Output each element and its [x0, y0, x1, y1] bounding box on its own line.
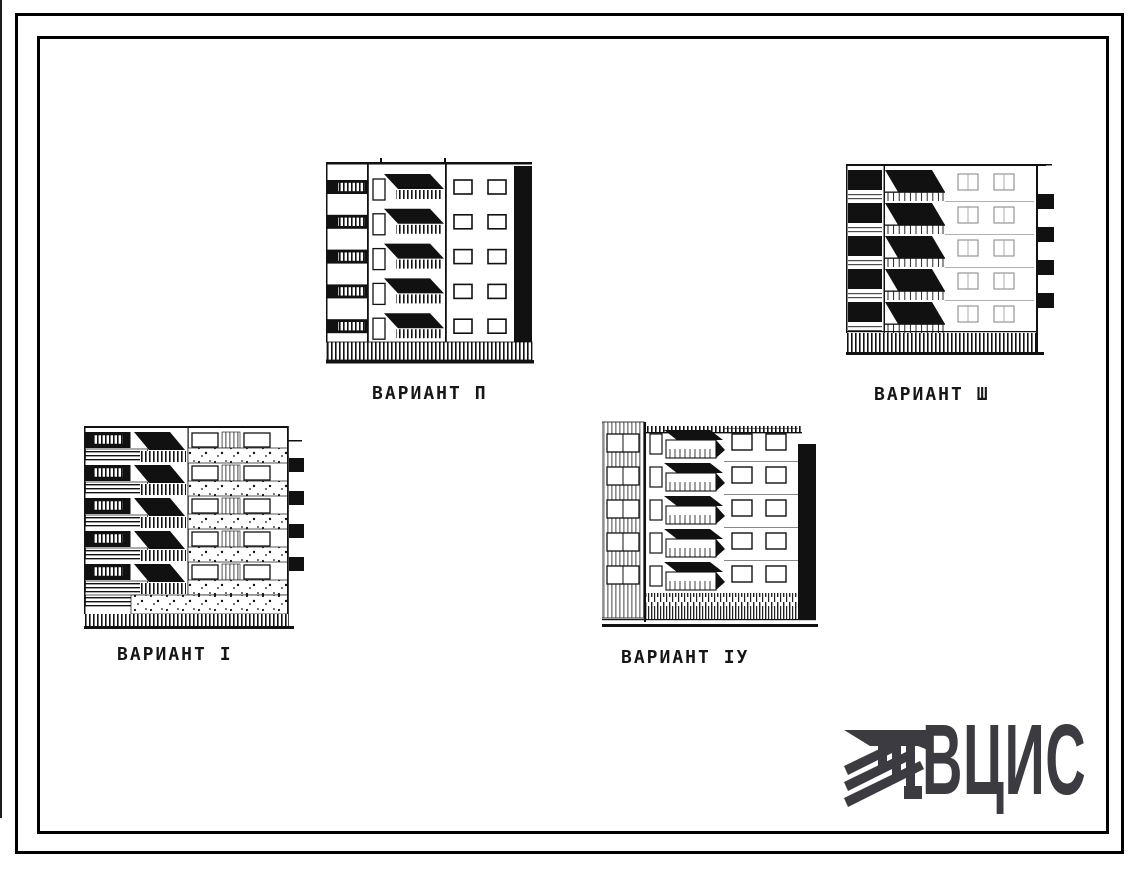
- side-balcony-blocks: [1038, 194, 1054, 308]
- caption-variant-4: ВАРИАНТ IУ: [621, 647, 749, 668]
- facade-floors: [848, 170, 1034, 334]
- facade-end-wall: [514, 166, 532, 342]
- ground-line: [846, 352, 1044, 355]
- facade-floors: [327, 174, 506, 339]
- facade-base: [326, 342, 532, 360]
- side-balcony-blocks: [289, 458, 304, 571]
- facade-right-edge: [287, 426, 289, 626]
- ground-line: [602, 624, 818, 627]
- facade-variant-4-drawing: [602, 420, 820, 632]
- figure-variant-3: [846, 162, 1058, 368]
- ground-line: [84, 626, 294, 629]
- caption-variant-1: ВАРИАНТ I: [117, 644, 233, 665]
- facade-base: [84, 614, 288, 626]
- facade-base: [646, 593, 798, 619]
- facade-variant-3-drawing: [846, 162, 1058, 368]
- facade-roof: [326, 158, 532, 165]
- facade-floors: [607, 428, 798, 590]
- figure-variant-1: [84, 424, 306, 630]
- figure-variant-2: [326, 158, 534, 370]
- caption-variant-2: ВАРИАНТ П: [372, 383, 488, 404]
- scan-edge-artifact: [0, 0, 2, 818]
- figure-variant-4: [602, 420, 820, 632]
- vcis-logo-text: ВЦИС: [922, 710, 1086, 810]
- facade-floors: [86, 432, 289, 595]
- vcis-logo-icon: [842, 724, 930, 808]
- facade-right-edge: [1036, 164, 1038, 354]
- facade-end-wall: [798, 444, 816, 620]
- ground-floor-band: [131, 595, 288, 614]
- drawing-sheet: ВАРИАНТ П: [0, 0, 1139, 869]
- caption-variant-3: ВАРИАНТ Ш: [874, 384, 990, 405]
- facade-base: [846, 333, 1036, 352]
- facade-variant-1-drawing: [84, 424, 306, 630]
- facade-variant-2-drawing: [326, 158, 534, 370]
- facade-roof: [846, 164, 1052, 166]
- ground-line: [326, 360, 534, 364]
